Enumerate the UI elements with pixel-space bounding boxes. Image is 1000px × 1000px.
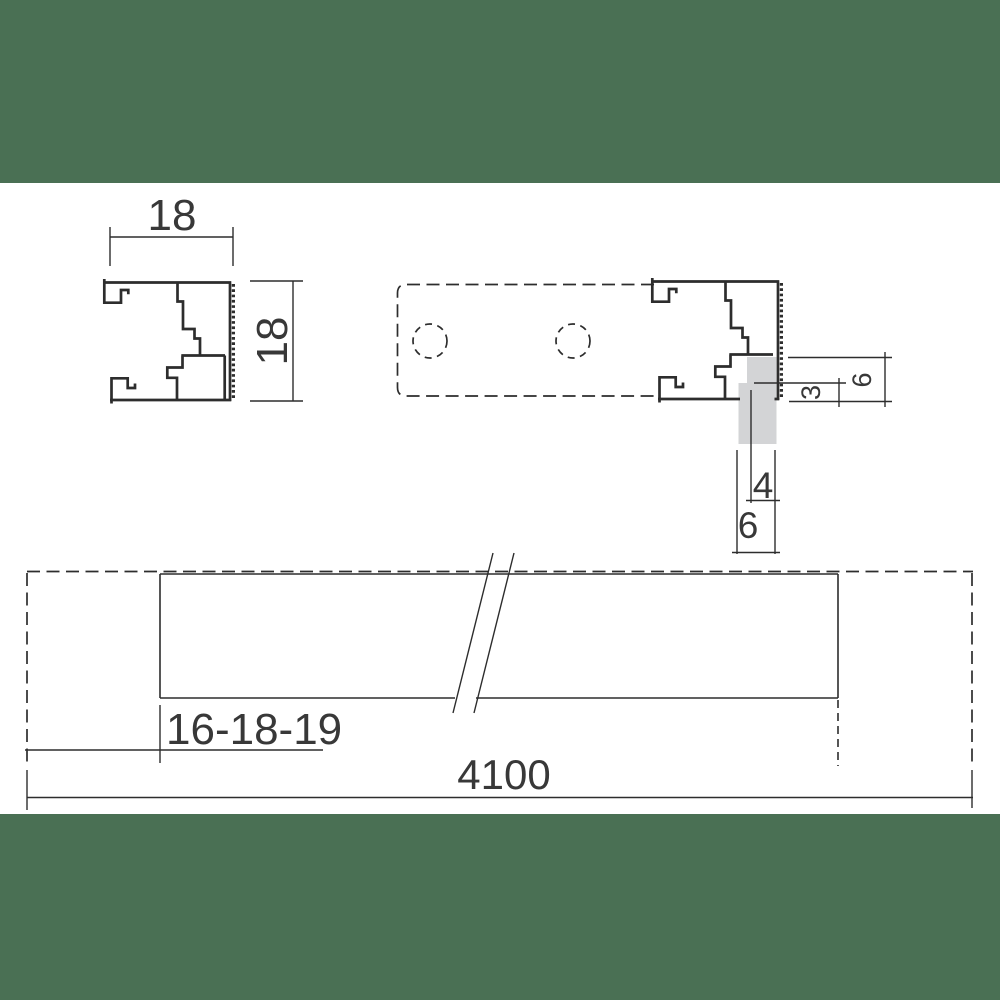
screw-hole-right bbox=[556, 324, 590, 358]
dim-edge-distance-label: 3 bbox=[796, 385, 826, 400]
dim-profile-width: 18 bbox=[110, 191, 233, 266]
profile-section-right bbox=[651, 278, 781, 444]
dim-profile-length: 4100 bbox=[27, 751, 973, 810]
mounting-plate-dashed-outline bbox=[398, 285, 655, 397]
drawing-page: 18 18 6 3 4 6 16-18- bbox=[0, 0, 1000, 1000]
dim-profile-width-label: 18 bbox=[148, 191, 197, 240]
dim-profile-length-label: 4100 bbox=[457, 751, 550, 798]
technical-drawing: 18 18 6 3 4 6 16-18- bbox=[0, 0, 1000, 1000]
dim-panel-thickness-label: 16-18-19 bbox=[166, 705, 342, 754]
bottom-green-band bbox=[0, 814, 1000, 1000]
dim-panel-step-width-label: 4 bbox=[753, 465, 774, 506]
profile-section-left bbox=[103, 279, 233, 404]
mounting-plate-hidden-outline bbox=[398, 285, 655, 397]
screw-hole-left bbox=[413, 324, 447, 358]
bar-outline bbox=[160, 574, 838, 698]
dim-profile-height-label: 18 bbox=[248, 317, 297, 366]
glass-panel bbox=[739, 357, 777, 444]
dim-panel-thickness-options: 16-18-19 bbox=[25, 705, 342, 763]
dim-groove-width-label: 6 bbox=[738, 505, 759, 546]
dim-rebate-height-label: 6 bbox=[847, 372, 877, 387]
dim-profile-height: 18 bbox=[248, 281, 303, 401]
top-green-band bbox=[0, 0, 1000, 183]
break-lines bbox=[453, 553, 514, 713]
